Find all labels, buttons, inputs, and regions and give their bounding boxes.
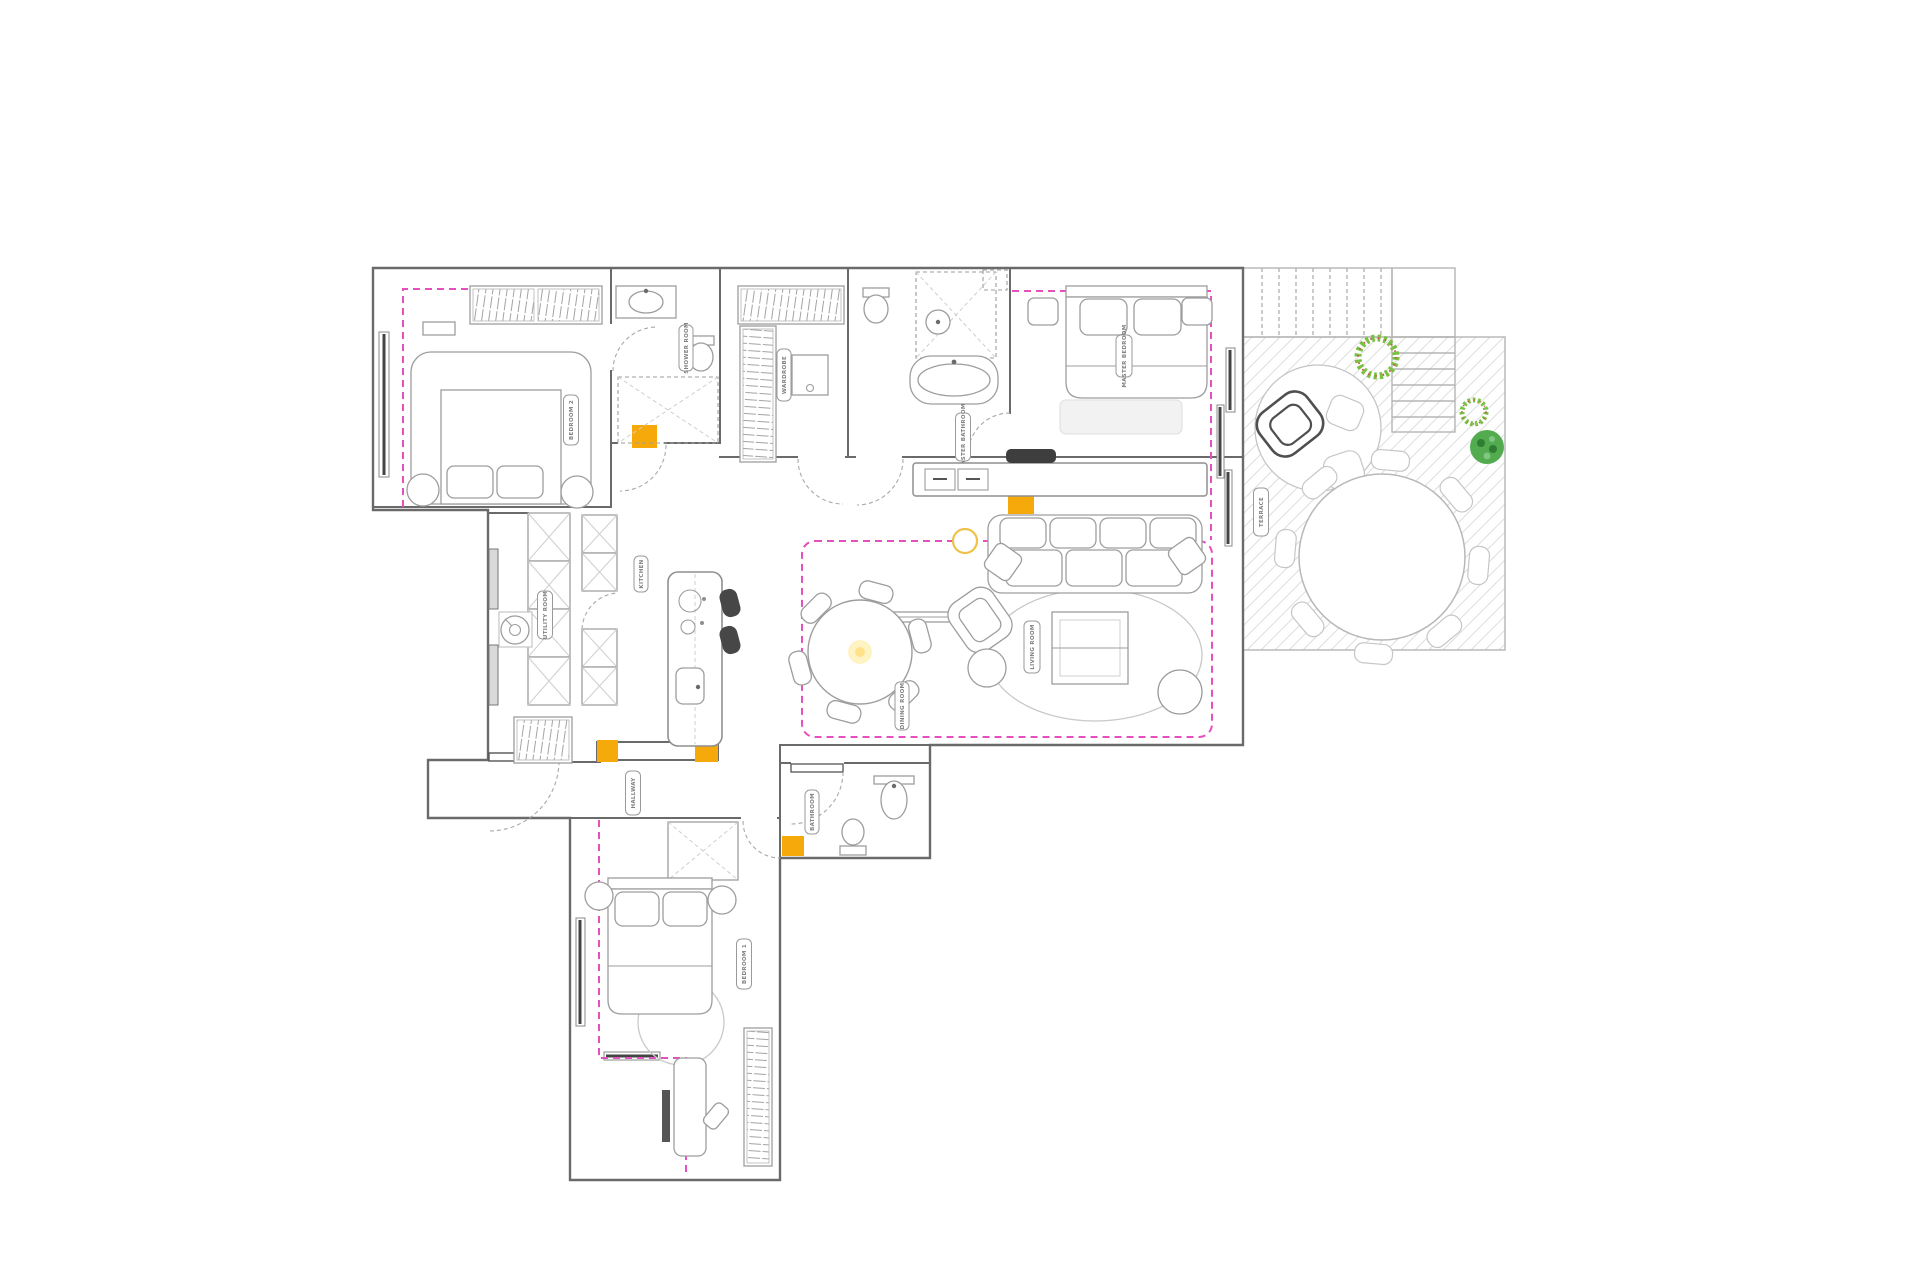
ensuite-label: SHOWER ROOM xyxy=(679,322,693,374)
tv-icon xyxy=(1006,449,1056,463)
window-bedroom1 xyxy=(576,918,585,1026)
svg-text:MASTER BATHROOM: MASTER BATHROOM xyxy=(961,403,967,470)
wardrobe-label: WARDROBE xyxy=(777,349,791,401)
wardrobe-hanger-rail xyxy=(744,1028,772,1166)
sofa xyxy=(982,515,1208,593)
nightstand-round xyxy=(708,886,736,914)
toilet xyxy=(863,288,889,323)
room-wardrobe: WARDROBE xyxy=(738,286,844,462)
wardrobe-cabinet xyxy=(668,822,738,880)
dining-label: DINING ROOM xyxy=(895,682,909,730)
closet-hanger-rail-top xyxy=(738,286,844,324)
entrance-door xyxy=(489,753,559,831)
nightstand-round xyxy=(407,474,439,506)
bathtub xyxy=(910,356,998,404)
living-label: LIVING ROOM xyxy=(1024,621,1040,673)
bed-rug xyxy=(1060,400,1182,434)
room-bedroom1: BEDROOM 1 xyxy=(585,822,772,1166)
bedroom2-label: BEDROOM 2 xyxy=(564,395,579,445)
ceiling-light-symbol xyxy=(953,529,977,553)
nightstand-round xyxy=(585,882,613,910)
svg-text:MASTER BEDROOM: MASTER BEDROOM xyxy=(1122,324,1128,387)
nightstand-round xyxy=(561,476,593,508)
closet-dresser xyxy=(792,355,828,395)
svg-text:UTILITY ROOM: UTILITY ROOM xyxy=(543,591,549,639)
svg-text:BATHROOM: BATHROOM xyxy=(810,793,816,831)
nightstand xyxy=(1028,298,1058,325)
pedestal-sink xyxy=(874,776,914,819)
master-bathroom-label: MASTER BATHROOM xyxy=(956,403,971,470)
terrace-label: TERRACE xyxy=(1254,488,1269,536)
closet-hanger-rail-side xyxy=(740,326,776,462)
svg-text:SHOWER ROOM: SHOWER ROOM xyxy=(684,322,690,374)
svg-text:TERRACE: TERRACE xyxy=(1259,497,1265,527)
washing-machine-icon xyxy=(499,612,532,647)
hallway-label: HALLWAY xyxy=(626,771,641,815)
terrace-dining-set xyxy=(1274,449,1490,665)
radiator xyxy=(489,645,498,705)
svg-text:KITCHEN: KITCHEN xyxy=(639,559,645,588)
svg-text:HALLWAY: HALLWAY xyxy=(631,777,637,809)
tv-console xyxy=(913,463,1207,496)
floor-plan-drawing: TERRACE xyxy=(0,0,1920,1280)
kitchen-island xyxy=(668,572,722,746)
window-master-bedroom xyxy=(1226,348,1235,412)
column-shaft xyxy=(597,740,618,762)
radiator xyxy=(489,549,498,609)
floor-plan-page: TERRACE xyxy=(0,0,1920,1280)
stair-landing xyxy=(1392,268,1455,337)
shower xyxy=(916,272,996,358)
walk-in-shower xyxy=(618,377,718,443)
desk xyxy=(662,1058,730,1156)
side-table-round xyxy=(1158,670,1202,714)
tray-shelf xyxy=(423,322,455,335)
nightstand xyxy=(1182,298,1212,325)
svg-text:BEDROOM 2: BEDROOM 2 xyxy=(569,400,575,440)
wall-shelf xyxy=(662,1090,670,1142)
room-living: LIVING ROOM xyxy=(913,449,1208,721)
plant-bush-icon xyxy=(1470,430,1504,464)
room-kitchen: UTILITY ROOM KITCHEN xyxy=(489,513,742,746)
bathroom-label: BATHROOM xyxy=(805,790,819,834)
wardrobe-hangers xyxy=(470,286,602,324)
room-bedroom2: BEDROOM 2 xyxy=(407,286,602,508)
utility-label: UTILITY ROOM xyxy=(538,591,553,639)
kitchen-label: KITCHEN xyxy=(634,556,648,592)
coat-closet xyxy=(514,717,572,763)
toilet xyxy=(840,819,866,855)
room-ensuite: SHOWER ROOM xyxy=(616,286,718,443)
dining-area: DINING ROOM xyxy=(787,579,933,730)
hallway-area: HALLWAY xyxy=(514,717,641,815)
terrace: TERRACE xyxy=(1243,268,1505,665)
room-master-bedroom: MASTER BEDROOM xyxy=(1028,286,1212,434)
bed-double xyxy=(608,878,712,1014)
pouf xyxy=(968,649,1006,687)
svg-text:BEDROOM 1: BEDROOM 1 xyxy=(742,944,748,984)
svg-text:DINING ROOM: DINING ROOM xyxy=(900,683,906,730)
room-bathroom: BATHROOM xyxy=(805,776,914,855)
pantry-cabinets xyxy=(582,515,617,705)
coffee-table xyxy=(1052,612,1128,684)
bedroom1-label: BEDROOM 1 xyxy=(737,939,752,989)
room-master-bathroom: MASTER BATHROOM xyxy=(863,270,1007,471)
column-shaft xyxy=(632,425,657,448)
column-shaft xyxy=(782,836,804,856)
svg-text:LIVING ROOM: LIVING ROOM xyxy=(1030,624,1036,669)
svg-text:WARDROBE: WARDROBE xyxy=(782,356,788,394)
window-bedroom2 xyxy=(379,332,389,477)
terrace-sliding-door xyxy=(1217,405,1232,546)
sink-counter xyxy=(616,286,676,318)
